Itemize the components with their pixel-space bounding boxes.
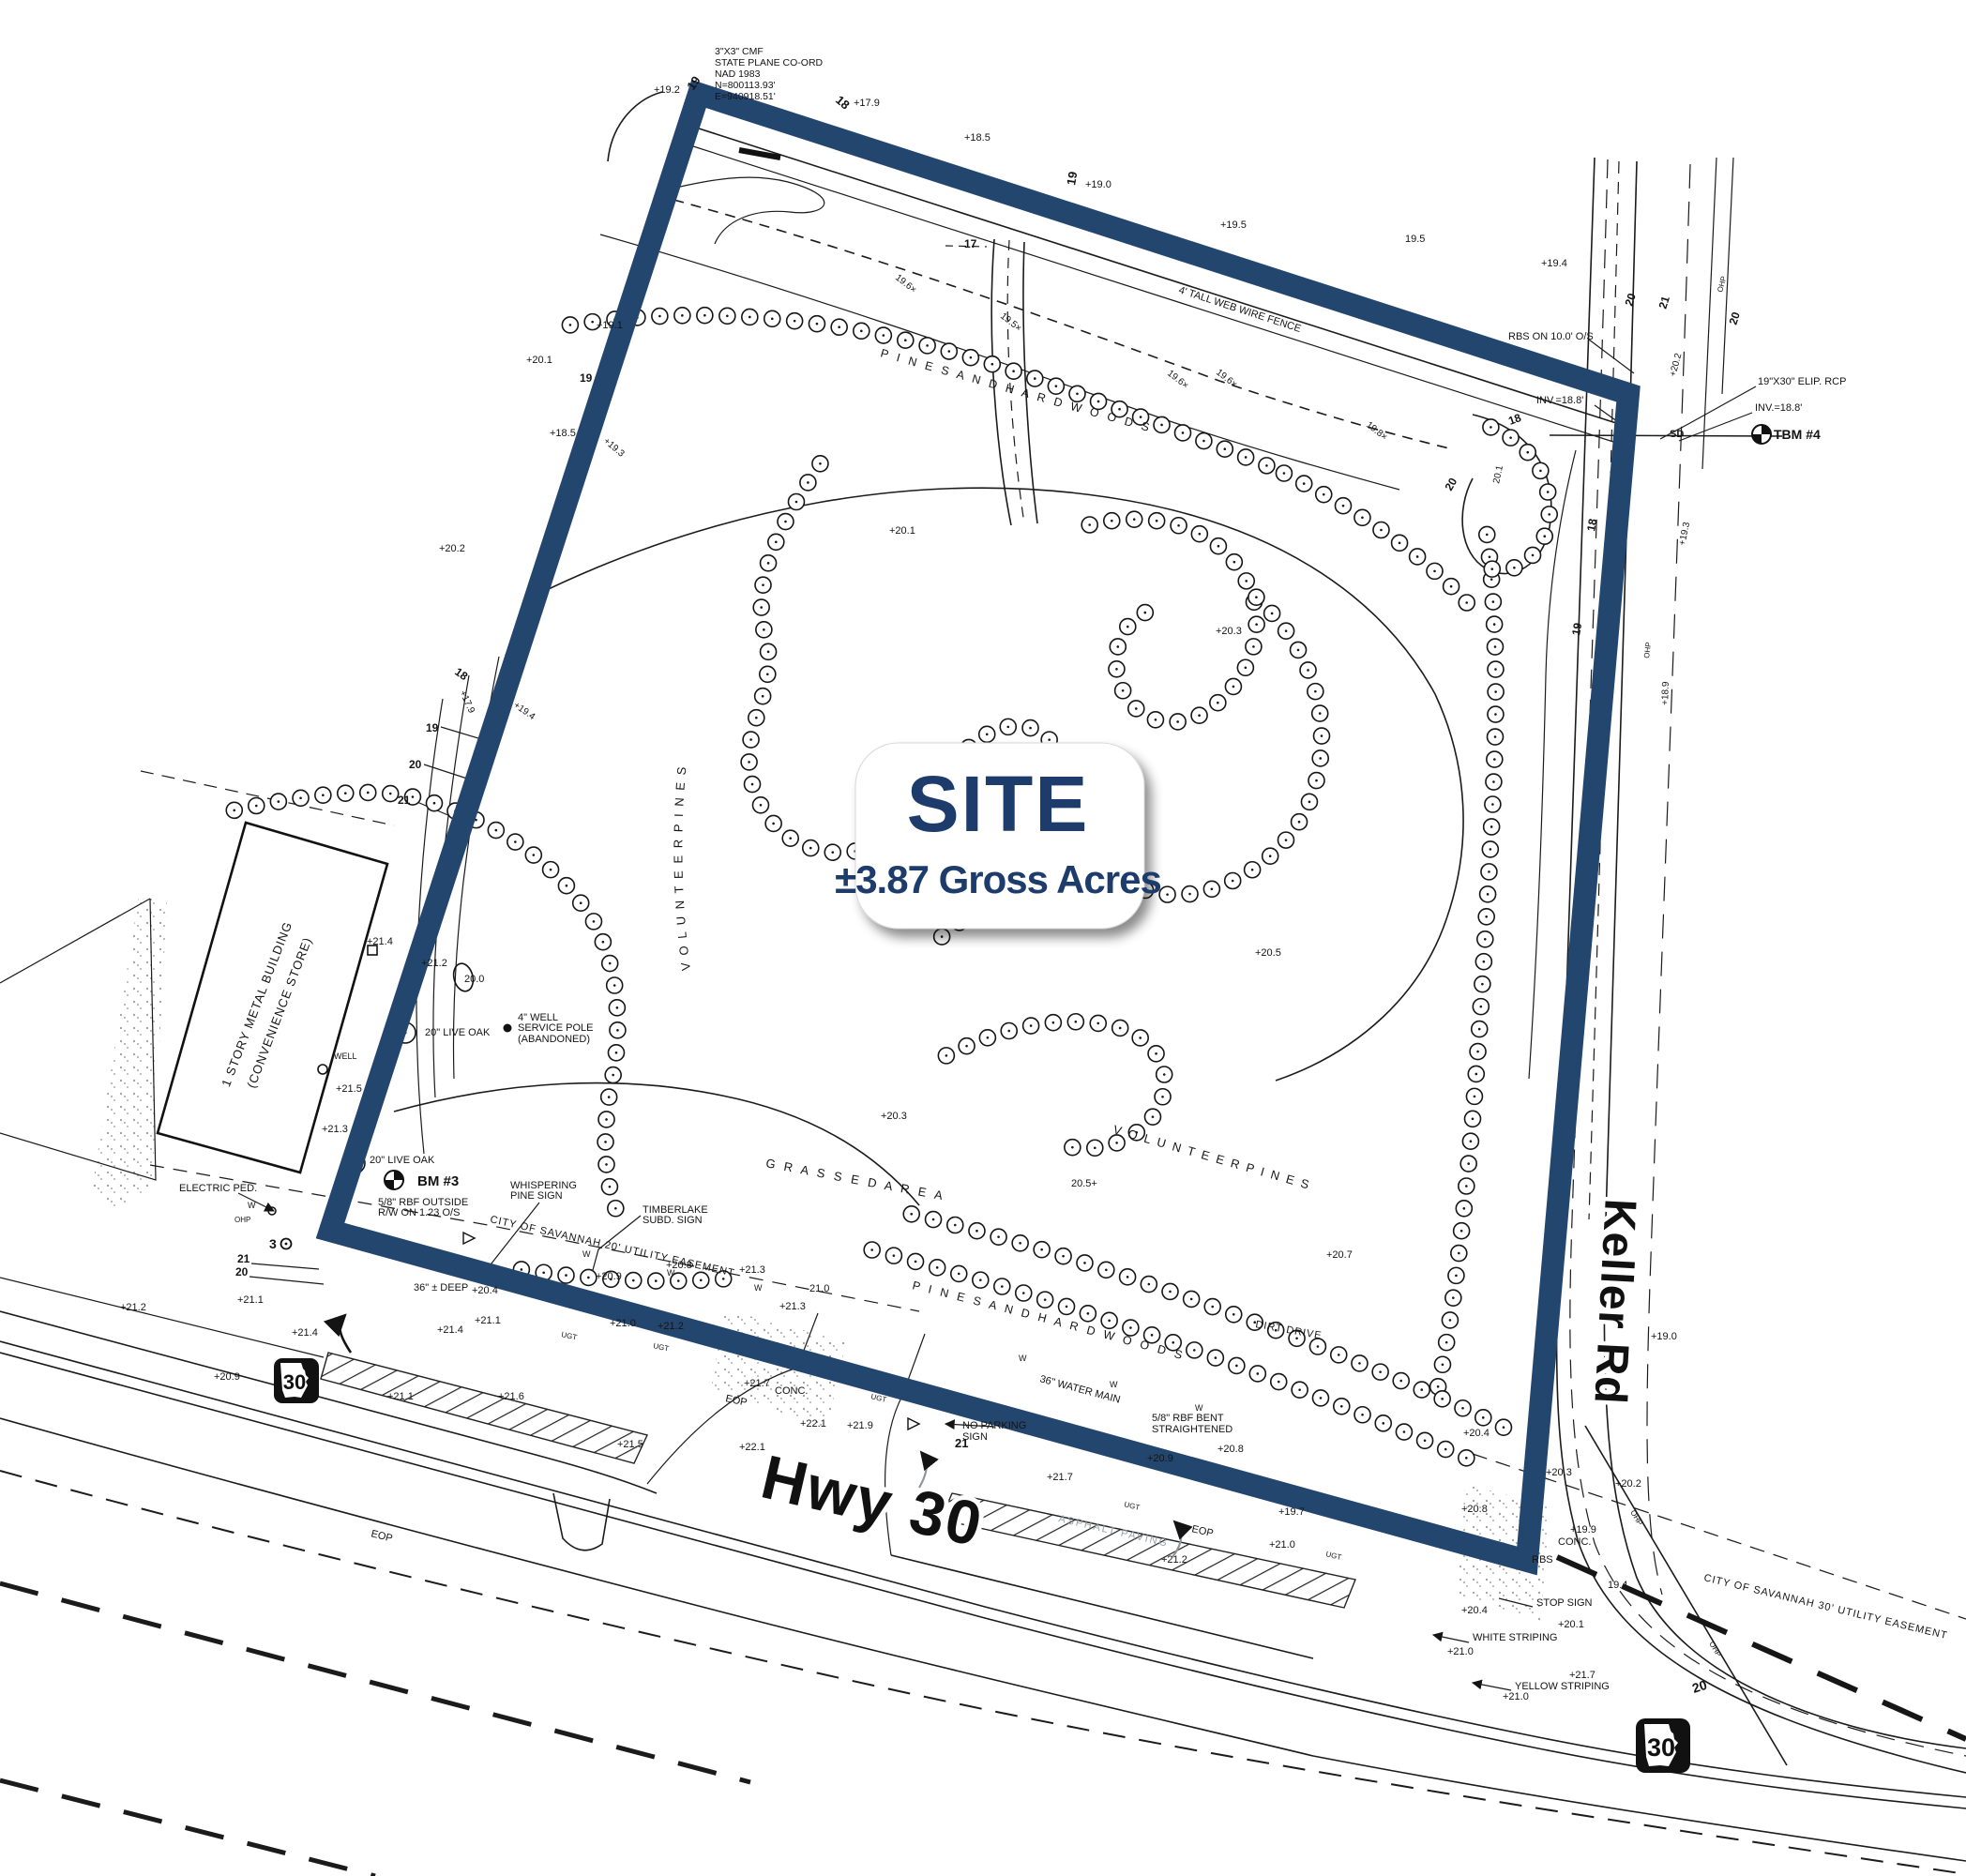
annotation-text: BM #3 [417,1173,459,1189]
annotation-text: CONC. [1558,1536,1591,1548]
annotation-text: 19.5 [1405,234,1425,245]
annotation-text: 18 [1584,518,1599,533]
annotation-text: INV.=18.8' [1755,402,1802,414]
annotation-text: 5/8" RBF BENT [1152,1413,1224,1424]
annotation-text: +21.7 [744,1378,770,1389]
annotation-text: +21.1 [387,1391,414,1402]
annotation-text: +17.9 [457,689,476,716]
survey-drawing: P I N E S A N D H A R D W O O D S P I N … [0,0,1966,1876]
annotation-text: +21.4 [292,1327,318,1339]
annotation-text: 20.0 [464,974,484,985]
annotation-text: +20.1 [526,355,552,366]
annotation-text: +21.0 [1503,1691,1529,1702]
annotation-text: +21.0 [1447,1646,1474,1657]
annotation-text: W [667,1268,675,1278]
annotation-text: SD [1670,429,1684,440]
annotation-text: +21.3 [322,1124,348,1135]
annotation-text: 19"X30" ELIP. RCP [1758,376,1846,387]
svg-text:V O L U N T E E R P I N E S: V O L U N T E E R P I N E S [671,764,693,972]
site-title: SITE [907,760,1090,848]
annotation-text: 19 [1569,622,1584,637]
annotation-text: 19.6× [1165,369,1190,391]
annotation-text: +21.1 [475,1315,501,1326]
annotation-text: +18.5 [964,132,991,144]
annotation-text: 18 [833,93,853,113]
annotation-text: STOP SIGN [1536,1597,1593,1609]
annotation-text: +20.9 [214,1371,240,1383]
annotation-text: W [1195,1403,1203,1413]
annotation-text: 19.5× [998,311,1023,334]
annotation-text: W [248,1201,256,1210]
annotation-text: 3"X3" CMF [715,46,764,57]
route-shield-30-west: 30 [274,1358,319,1403]
annotation-text: +21.4 [437,1324,463,1336]
annotation-text: YELLOW STRIPING [1515,1681,1610,1692]
annotation-text: 18 [1506,411,1523,428]
annotation-text: +18.5 [550,428,576,439]
volunteer-pines-left-label: V O L U N T E E R P I N E S [671,764,693,972]
service-pole-icon [504,1024,512,1033]
annotation-text: 20.1 [1491,464,1505,485]
annotation-text: SERVICE POLE [518,1022,594,1034]
annotation-text: +20.9 [1147,1453,1173,1464]
annotation-text: +21.2 [658,1321,684,1332]
annotation-text: W [582,1249,591,1259]
annotation-text: 20 [1623,292,1640,308]
annotation-text: R/W ON 1.23 O/S [378,1207,460,1218]
annotation-text: N=800113.93' [715,80,776,91]
annotation-text: +21.2 [120,1302,146,1313]
annotation-text: +19.0 [1651,1331,1677,1342]
annotation-text: +19.3 [601,436,627,460]
annotation-text: +21.9 [847,1420,873,1431]
annotation-text: SUBD. SIGN [643,1215,703,1226]
annotation-text: 36" WATER MAIN [1038,1373,1121,1405]
annotation-text: INV.=18.8' [1536,395,1583,406]
annotation-text: 20 [1727,310,1744,326]
annotation-text: +20.1 [889,525,915,537]
annotation-text: OHP [1642,642,1653,658]
annotation-text: +21.5 [617,1439,643,1450]
annotation-text: +22.1 [800,1418,826,1430]
annotation-text: 19 [580,371,593,385]
annotation-text: STRAIGHTENED [1152,1424,1233,1435]
annotation-text: UGT [653,1341,670,1353]
annotation-text: 36" ± DEEP [414,1282,468,1294]
annotation-text: 21.0 [809,1283,829,1294]
annotation-text: +21.0 [1269,1539,1295,1551]
annotation-text: +21.0 [610,1318,636,1329]
annotation-text: +21.7 [1047,1472,1073,1483]
svg-text:30: 30 [283,1370,306,1394]
annotation-text: +21.7 [1569,1670,1595,1681]
annotation-text: RBS ON 10.0' O/S [1508,331,1594,342]
annotation-text: +20.5 [1255,947,1281,959]
annotation-text: +22.1 [739,1442,765,1453]
annotation-text: +18.9 [1660,681,1671,705]
annotation-text: +20.2 [1615,1478,1641,1490]
annotation-text: ELECTRIC PED. [179,1183,257,1194]
annotation-text: TBM #4 [1774,427,1821,442]
annotation-text: +20.3 [1546,1467,1572,1478]
annotation-text: +20.4 [1461,1605,1488,1616]
annotation-text: CITY OF SAVANNAH 30' UTILITY EASEMENT [1702,1572,1948,1641]
hwy-30-label: Hwy 30 [755,1442,990,1560]
annotation-text: 21 [398,794,411,807]
annotation-text: +21.3 [779,1301,806,1312]
annotation-text: +21.4 [367,936,393,947]
annotation-text: +20.3 [881,1111,907,1122]
annotation-text: +21.2 [421,958,447,969]
annotation-text: +20.4 [1463,1428,1490,1439]
annotation-text: 19 [426,721,439,734]
annotation-text: 19.4 [1608,1580,1627,1591]
annotation-text: +20.8 [1217,1444,1244,1455]
svg-text:30: 30 [1647,1733,1675,1762]
annotation-text: 19 [1064,171,1080,187]
annotation-text: 21 [1656,295,1673,310]
annotation-text: PINE SIGN [510,1190,563,1202]
annotation-text: UGT [1124,1500,1142,1512]
svg-text:P I N E S A N D H A R D: P I N E S A N D H A R D W O O D S [879,346,1154,434]
annotation-text: 20" LIVE OAK [425,1027,491,1038]
annotation-text: EOP [370,1528,393,1544]
annotation-text: +20.8 [1461,1504,1488,1515]
annotation-text: OHP [1707,1640,1723,1658]
annotation-text: +21.2 [1161,1554,1187,1566]
annotation-text: UGT [1325,1550,1343,1562]
annotation-text: RBS [1532,1554,1553,1566]
annotation-text: OHP [1628,1508,1644,1527]
annotation-text: UGT [561,1330,578,1341]
annotation-text: (ABANDONED) [518,1034,590,1045]
annotation-text: +20.2 [439,543,465,554]
annotation-text: +19.4 [1541,258,1567,269]
annotation-text: +19.4 [511,700,537,722]
annotation-text: +20.9 [596,1271,622,1282]
annotation-text: EOP [1190,1523,1214,1539]
annotation-text: +21.3 [739,1264,765,1276]
annotation-text: CONC. [775,1385,808,1397]
site-acreage: ±3.87 Gross Acres [835,857,1161,901]
annotation-text: 21 [955,1436,968,1450]
annotation-text: 20 [1690,1677,1709,1696]
annotation-text: +20.4 [472,1285,498,1296]
benchmark-tbm4-icon [1752,425,1771,444]
annotation-text: +21.5 [336,1083,362,1095]
annotation-text: +20.1 [1558,1619,1584,1630]
annotation-text: 20 [1442,476,1459,493]
annotation-text: W [1110,1380,1118,1389]
volunteer-pines-right-label: V O L U N T E E R P I N E S [1112,1122,1312,1191]
annotation-text: +20.7 [1326,1249,1353,1261]
annotation-text: NAD 1983 [715,68,761,80]
annotation-text: 20 [409,758,422,771]
annotation-text: STATE PLANE CO-ORD [715,57,824,68]
annotation-text: 21 [237,1252,250,1265]
well-icon [318,1065,327,1074]
annotation-text: +20.2 [1668,352,1684,378]
svg-text:V O L U N T E E R P I N E S: V O L U N T E E R P I N E S [1112,1122,1312,1191]
annotation-text: 19.6× [893,273,918,295]
annotation-text: +19.3 [1677,521,1692,546]
annotation-text: +19.0 [1085,179,1112,190]
annotation-text: +19.1 [597,320,623,331]
annotation-text: 19.8× [1364,420,1389,443]
annotation-text: OHP [1716,275,1728,293]
annotation-text: +20.3 [1216,626,1242,637]
annotation-text: +19.7 [1278,1506,1305,1518]
woods-top-label: P I N E S A N D H A R D W O O D S [879,346,1154,434]
annotation-text: 17 [964,237,977,250]
site-plan-page: P I N E S A N D H A R D W O O D S P I N … [0,0,1966,1876]
annotation-text: 20 [235,1265,249,1278]
svg-text:G R A S S E D A R E A: G R A S S E D A R E A [764,1156,946,1203]
annotation-text: OHP [234,1216,250,1224]
annotation-text: +19.5 [1220,219,1247,231]
annotation-text: 20.5+ [1071,1178,1097,1189]
annotation-text: NO PARKING [962,1420,1026,1431]
site-badge: SITE ±3.87 Gross Acres [835,743,1161,929]
annotation-text: 3 [269,1236,277,1251]
annotation-text: 20" LIVE OAK [370,1155,435,1166]
annotation-text: +17.9 [854,98,880,109]
annotation-text: +19.2 [654,84,680,96]
annotation-text: W [754,1283,763,1293]
keller-rd-label: Keller Rd [1584,1198,1644,1406]
annotation-text: WELL [334,1051,357,1061]
annotation-text: E=940918.51' [715,91,776,102]
grassed-area-label: G R A S S E D A R E A [764,1156,946,1203]
route-shield-30-east: 30 [1636,1718,1690,1773]
annotation-text: W [1019,1354,1027,1363]
annotation-text: WHITE STRIPING [1473,1632,1557,1643]
annotation-text: +19.9 [1570,1524,1596,1536]
annotation-text: +21.6 [498,1391,524,1402]
benchmark-bm3-icon [385,1171,403,1189]
annotation-text: +21.1 [237,1294,264,1306]
